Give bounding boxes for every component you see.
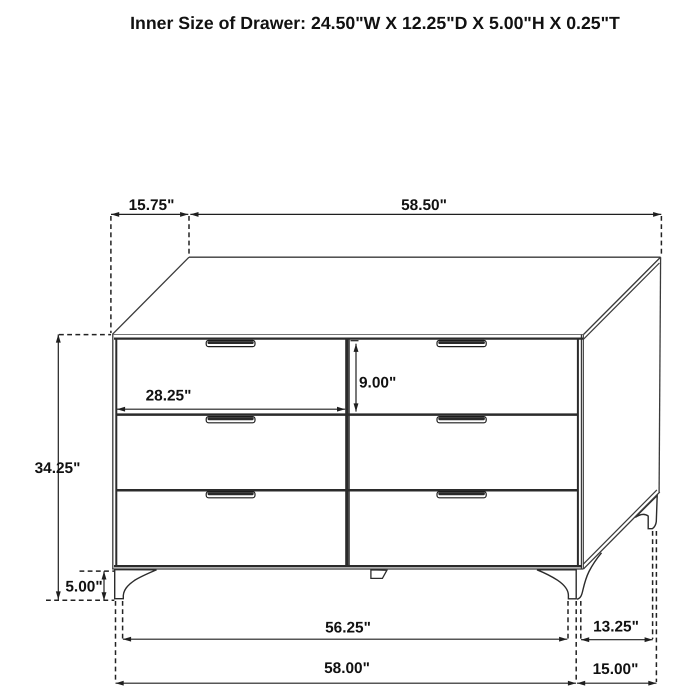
svg-text:15.75": 15.75" [129, 197, 175, 214]
svg-text:58.00": 58.00" [324, 660, 370, 677]
svg-text:15.00": 15.00" [593, 661, 639, 678]
svg-text:58.50": 58.50" [401, 197, 447, 214]
svg-text:56.25": 56.25" [325, 620, 371, 637]
svg-text:Inner Size of Drawer: 24.50"W: Inner Size of Drawer: 24.50"W X 12.25"D … [130, 13, 620, 33]
svg-text:34.25": 34.25" [35, 460, 81, 477]
svg-text:9.00": 9.00" [359, 374, 396, 391]
svg-text:5.00": 5.00" [65, 579, 102, 596]
svg-text:28.25": 28.25" [146, 388, 192, 405]
svg-text:13.25": 13.25" [593, 619, 639, 636]
